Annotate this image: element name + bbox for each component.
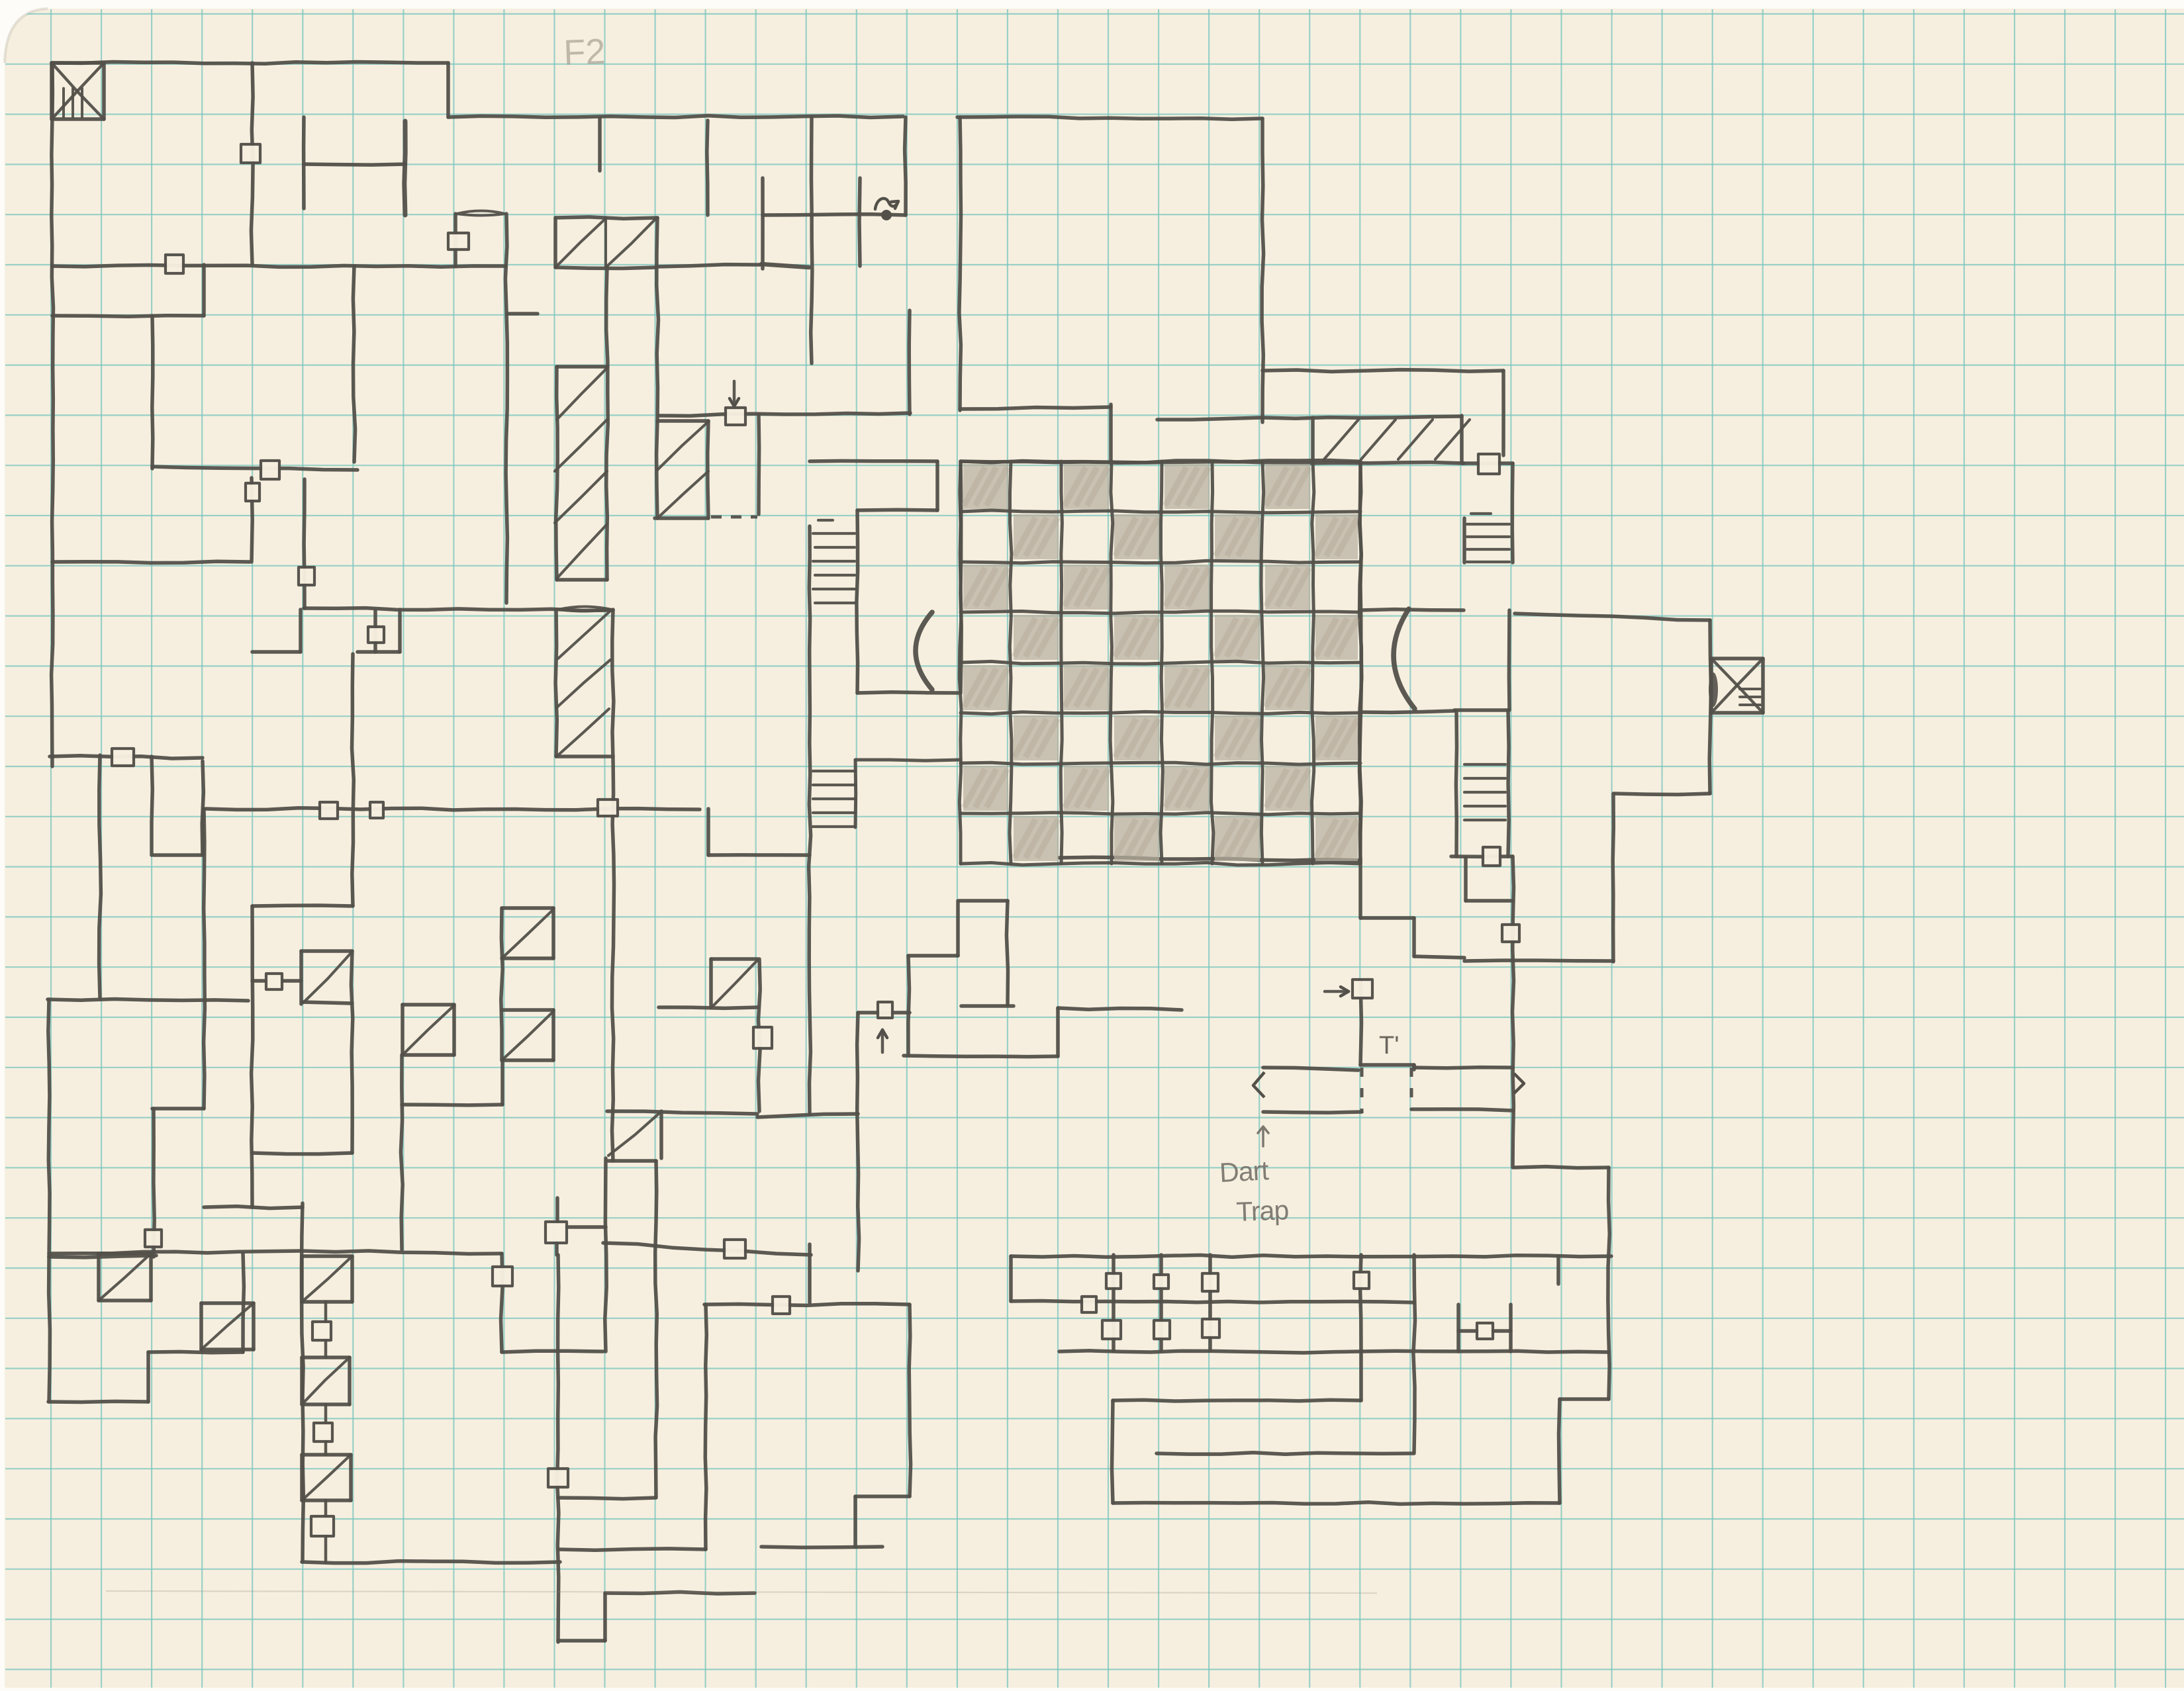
svg-text:T': T' xyxy=(1379,1032,1399,1060)
svg-text:Dart: Dart xyxy=(1219,1155,1270,1188)
svg-text:Trap: Trap xyxy=(1236,1195,1290,1227)
svg-text:F2: F2 xyxy=(563,32,606,73)
